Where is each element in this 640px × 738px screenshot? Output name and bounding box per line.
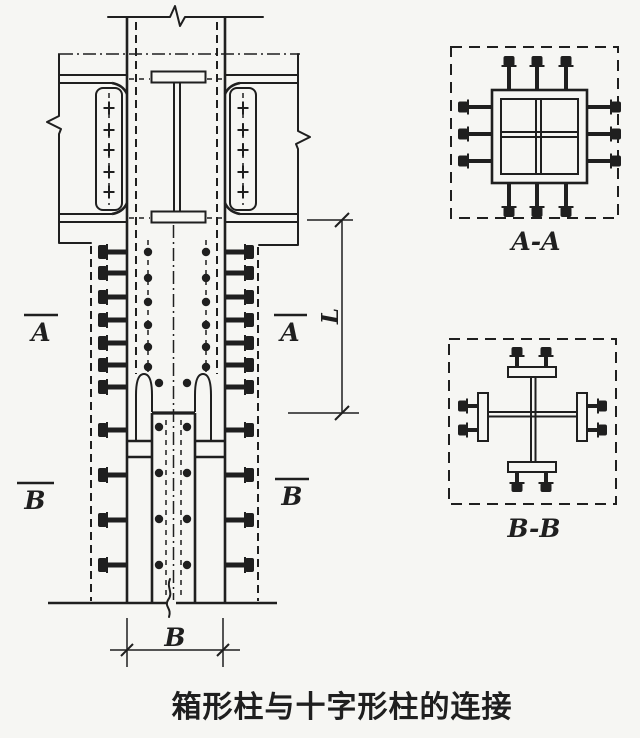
ground-break-line bbox=[48, 579, 277, 617]
dimension-B: B bbox=[110, 618, 240, 667]
splice-plate-right bbox=[230, 88, 256, 210]
top-break-line bbox=[108, 6, 263, 26]
bolts-right bbox=[225, 244, 254, 573]
dim-L-label: L bbox=[317, 308, 344, 325]
i-beam-stub bbox=[152, 72, 206, 223]
section-marker-a-left: A bbox=[24, 315, 58, 347]
marker-b-left-label: B bbox=[23, 486, 45, 515]
box-column-faces bbox=[127, 17, 225, 603]
section-view-bb: B-B bbox=[449, 339, 616, 543]
box-section bbox=[492, 90, 587, 183]
figure-caption: 箱形柱与十字形柱的连接 bbox=[172, 690, 513, 725]
cruciform-transition bbox=[127, 374, 225, 603]
bolts-left bbox=[98, 244, 127, 573]
structural-drawing: A A B B L B bbox=[0, 0, 640, 738]
marker-b-right-label: B bbox=[280, 482, 302, 511]
section-aa-label: A-A bbox=[509, 227, 560, 256]
beam-left bbox=[47, 54, 127, 243]
section-marker-b-right: B bbox=[275, 479, 309, 511]
cruciform-section bbox=[478, 367, 587, 472]
elevation-view: A A B B L B bbox=[17, 6, 359, 667]
marker-a-right-label: A bbox=[278, 318, 299, 347]
collar-stiffeners bbox=[127, 441, 225, 457]
splice-plate-left bbox=[96, 88, 122, 210]
section-view-aa: A-A bbox=[451, 47, 621, 256]
section-bb-bolts bbox=[458, 347, 607, 492]
section-marker-a-right: A bbox=[274, 315, 307, 347]
dim-B-label: B bbox=[163, 623, 185, 652]
section-bb-boundary bbox=[449, 339, 616, 504]
section-marker-b-left: B bbox=[17, 483, 54, 515]
bolt-holes bbox=[144, 248, 210, 569]
section-bb-label: B-B bbox=[506, 514, 560, 543]
marker-a-left-label: A bbox=[29, 318, 50, 347]
